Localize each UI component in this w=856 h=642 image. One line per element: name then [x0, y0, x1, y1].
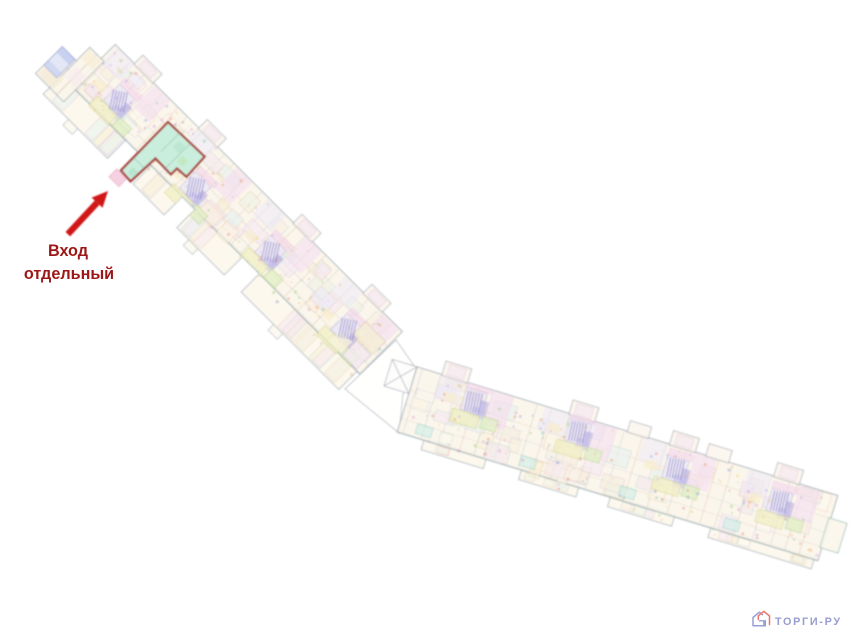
- svg-text:отдельный: отдельный: [24, 265, 114, 283]
- svg-text:ТОРГИ-РУ: ТОРГИ-РУ: [775, 616, 842, 628]
- svg-text:Вход: Вход: [48, 242, 88, 260]
